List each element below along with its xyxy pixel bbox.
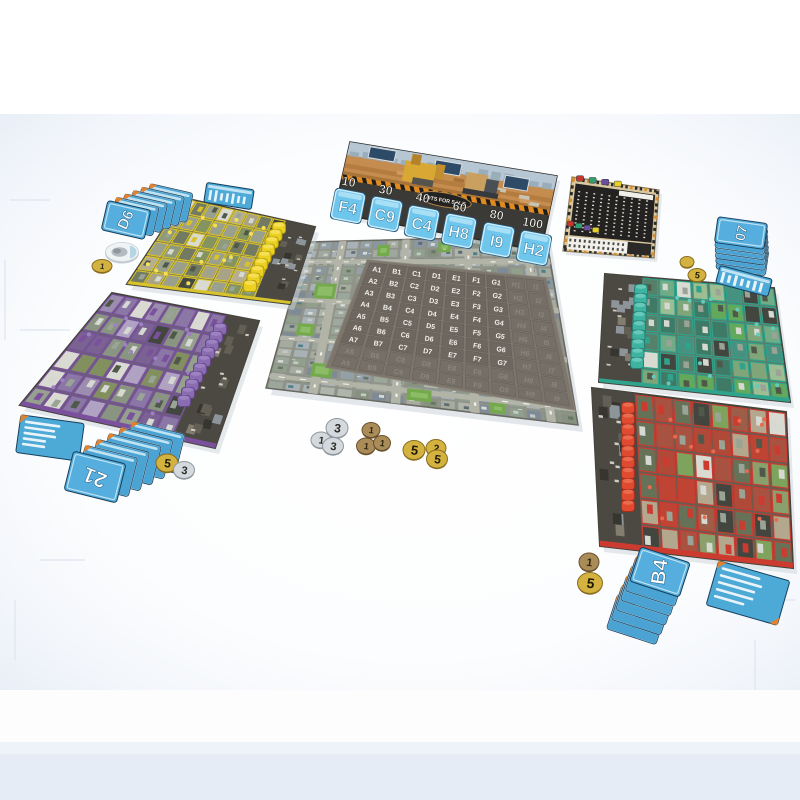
svg-text:B5: B5 [379, 316, 389, 324]
svg-text:D5: D5 [426, 323, 436, 331]
svg-text:H6: H6 [520, 350, 530, 358]
svg-text:D6: D6 [424, 335, 434, 343]
svg-text:B1: B1 [392, 268, 402, 276]
svg-text:I7: I7 [548, 367, 555, 375]
svg-text:F4: F4 [472, 316, 481, 324]
svg-text:A5: A5 [356, 313, 366, 321]
svg-text:H5: H5 [518, 336, 528, 344]
svg-text:I1: I1 [532, 284, 539, 292]
svg-text:40: 40 [415, 190, 431, 206]
svg-text:60: 60 [452, 199, 468, 215]
svg-text:A3: A3 [364, 290, 374, 298]
svg-text:D4: D4 [427, 310, 437, 318]
svg-text:B2: B2 [389, 280, 399, 288]
svg-text:F4: F4 [337, 198, 359, 218]
svg-text:E8: E8 [447, 365, 457, 373]
svg-text:F8: F8 [473, 369, 482, 377]
svg-text:F5: F5 [472, 330, 481, 338]
svg-text:E5: E5 [449, 326, 459, 334]
svg-text:E3: E3 [450, 301, 460, 309]
svg-text:C2: C2 [409, 283, 419, 291]
svg-text:C9: C9 [393, 369, 403, 377]
svg-text:B4: B4 [382, 304, 392, 312]
svg-text:C6: C6 [400, 332, 410, 340]
svg-text:D7: D7 [423, 348, 433, 356]
svg-text:D2: D2 [430, 285, 440, 293]
svg-text:C7: C7 [398, 344, 408, 352]
svg-text:C3: C3 [407, 295, 417, 303]
svg-text:I4: I4 [540, 326, 547, 334]
svg-text:H1: H1 [511, 281, 521, 289]
svg-text:D1: D1 [431, 273, 441, 281]
svg-text:I3: I3 [538, 312, 545, 320]
svg-text:I9: I9 [553, 395, 560, 403]
svg-text:H7: H7 [522, 363, 532, 371]
svg-text:A6: A6 [352, 325, 362, 333]
svg-text:I2: I2 [535, 298, 542, 306]
svg-text:H3: H3 [515, 309, 525, 317]
svg-text:H4: H4 [516, 322, 526, 330]
svg-text:F1: F1 [472, 277, 481, 285]
svg-text:D9: D9 [420, 373, 430, 381]
svg-text:G6: G6 [496, 346, 506, 354]
svg-text:A8: A8 [344, 348, 354, 356]
svg-text:A1: A1 [372, 266, 382, 274]
svg-text:F9: F9 [473, 382, 482, 390]
svg-text:10: 10 [341, 174, 357, 190]
svg-text:F7: F7 [473, 356, 482, 364]
svg-text:E4: E4 [450, 313, 460, 321]
svg-text:B9: B9 [367, 364, 377, 372]
svg-text:E9: E9 [446, 378, 456, 386]
svg-text:C1: C1 [412, 271, 422, 279]
svg-text:F2: F2 [472, 290, 481, 298]
svg-text:C5: C5 [402, 320, 412, 328]
svg-text:D8: D8 [421, 361, 431, 369]
svg-text:H9: H9 [525, 391, 535, 399]
svg-text:B7: B7 [373, 340, 383, 348]
svg-text:I6: I6 [545, 354, 552, 362]
svg-text:A2: A2 [368, 278, 378, 286]
svg-text:B3: B3 [385, 292, 395, 300]
svg-text:F6: F6 [472, 343, 481, 351]
svg-text:C4: C4 [405, 307, 415, 315]
svg-text:D3: D3 [429, 298, 439, 306]
svg-text:H2: H2 [513, 295, 523, 303]
svg-text:80: 80 [489, 207, 505, 223]
svg-text:I8: I8 [551, 381, 558, 389]
svg-text:F3: F3 [472, 303, 481, 311]
svg-text:A7: A7 [348, 336, 358, 344]
svg-text:I5: I5 [543, 340, 550, 348]
svg-text:30: 30 [378, 182, 394, 198]
svg-text:E1: E1 [452, 275, 462, 283]
svg-text:G1: G1 [491, 279, 501, 287]
svg-text:A4: A4 [360, 301, 370, 309]
svg-text:E2: E2 [451, 288, 461, 296]
svg-text:E7: E7 [448, 352, 458, 360]
svg-text:A9: A9 [340, 360, 350, 368]
svg-text:B4: B4 [647, 557, 672, 586]
svg-text:C8: C8 [396, 356, 406, 364]
svg-text:E6: E6 [448, 339, 458, 347]
svg-text:B8: B8 [370, 352, 380, 360]
svg-text:H8: H8 [524, 377, 534, 385]
svg-text:B6: B6 [376, 328, 386, 336]
